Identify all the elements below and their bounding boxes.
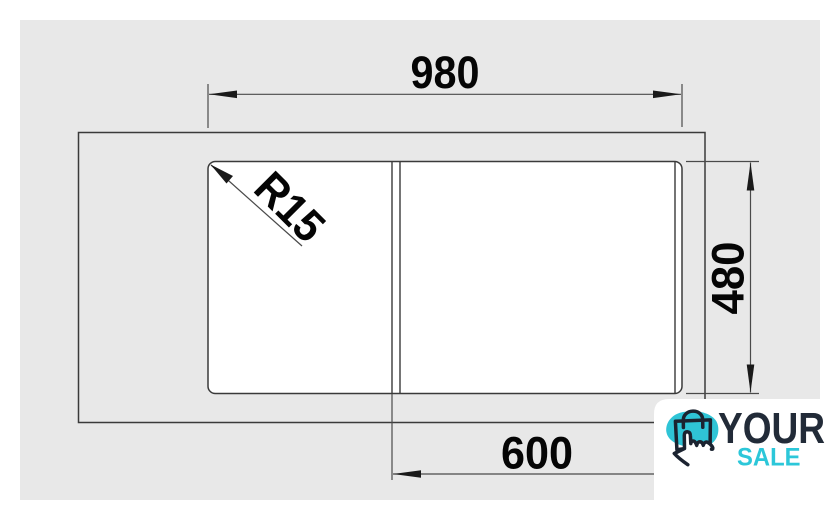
svg-text:980: 980 [411, 47, 480, 98]
svg-text:480: 480 [703, 242, 754, 315]
svg-text:600: 600 [501, 428, 573, 479]
svg-text:SALE: SALE [737, 444, 801, 472]
